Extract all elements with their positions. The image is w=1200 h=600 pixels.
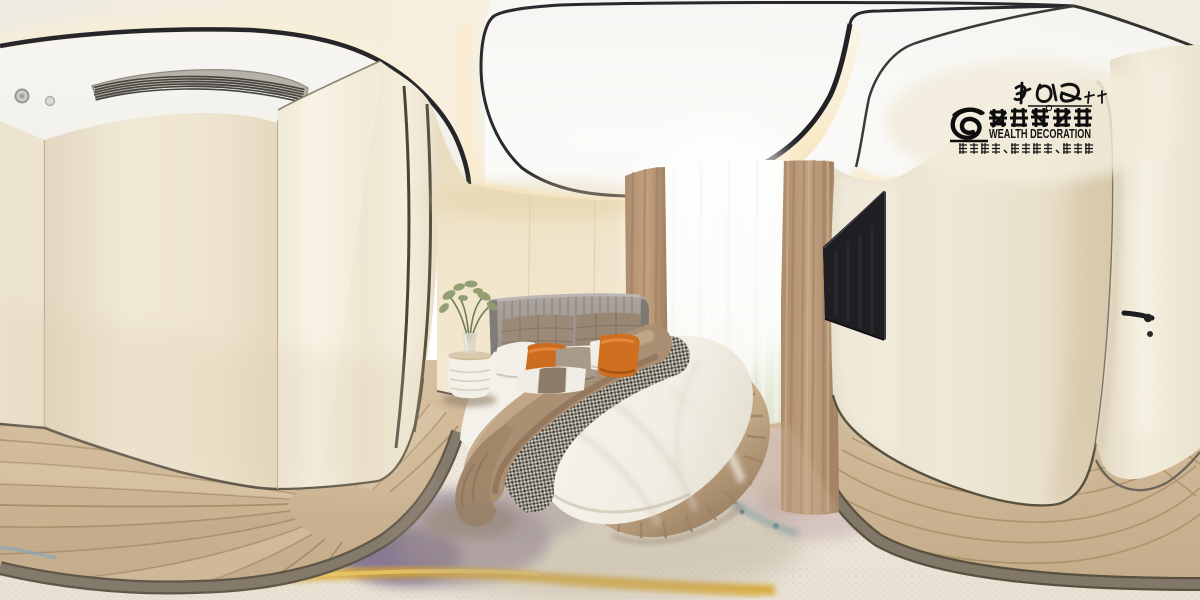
svg-text:WEALTH DECORATION: WEALTH DECORATION xyxy=(989,127,1091,141)
